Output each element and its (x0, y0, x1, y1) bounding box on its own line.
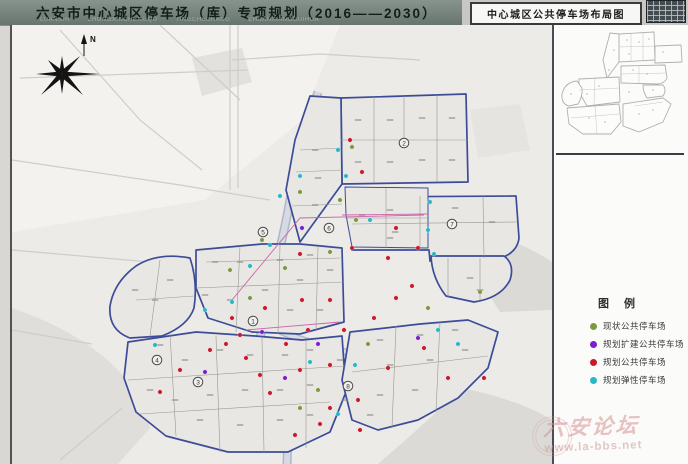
parking-planned-dot (360, 170, 364, 174)
parking-flexible-dot (336, 148, 340, 152)
district-label-mark (307, 254, 314, 256)
parking-planned-dot (284, 342, 288, 346)
zone-marker-8: 8 (343, 381, 353, 391)
zone-number: 8 (346, 383, 350, 390)
parking-planned-dot (358, 428, 362, 432)
parking-existing-dot (283, 266, 287, 270)
map-title-box: 中心城区公共停车场布局图 (470, 2, 642, 25)
legend-label: 规划扩建公共停车场 (603, 338, 684, 350)
district-label-mark (467, 277, 474, 279)
district-label-mark (167, 279, 174, 281)
district-label-mark (452, 207, 459, 209)
district-label-mark (152, 299, 159, 301)
parking-planned-dot (300, 298, 304, 302)
parking-flexible-dot (428, 200, 432, 204)
district-label-mark (307, 349, 314, 351)
district-label-mark (287, 309, 294, 311)
district-label-mark (317, 309, 324, 311)
parking-planned-dot (372, 316, 376, 320)
parking-expansion-dot (416, 336, 420, 340)
district-label-mark (307, 414, 314, 416)
zone-marker-5: 5 (258, 227, 268, 237)
parking-flexible-dot (153, 343, 157, 347)
district-label-mark (342, 399, 349, 401)
district-connector (345, 187, 428, 248)
parking-planned-dot (208, 348, 212, 352)
legend-label: 规划公共停车场 (603, 356, 666, 368)
district-label-mark (277, 389, 284, 391)
parking-planned-dot (306, 328, 310, 332)
district-label-mark (182, 359, 189, 361)
legend-item-flexible: 规划弹性停车场 (590, 374, 684, 386)
parking-existing-dot (426, 306, 430, 310)
sidebar-divider (556, 153, 684, 155)
watermark-site-name: 六安论坛 (542, 407, 688, 442)
parking-flexible-dot (456, 342, 460, 346)
district-central (196, 244, 344, 334)
district-label-mark (489, 221, 496, 223)
parking-planned-dot (298, 368, 302, 372)
parking-existing-dot (328, 250, 332, 254)
parking-planned-dot (386, 366, 390, 370)
parking-planned-dot (482, 376, 486, 380)
district-label-mark (452, 329, 459, 331)
parking-planned-dot (268, 391, 272, 395)
parking-planned-dot (342, 328, 346, 332)
parking-planned-dot (348, 138, 352, 142)
parking-flexible-dot (230, 300, 234, 304)
district-label-mark (337, 359, 344, 361)
parking-expansion-dot (283, 376, 287, 380)
zone-marker-4: 4 (152, 355, 162, 365)
district-label-mark (392, 231, 399, 233)
parking-planned-dot (318, 422, 322, 426)
title-bar: 六安市中心城区停车场（库）专项规划（2016——2030） LUANSHI ZH… (0, 0, 462, 25)
district-label-mark (315, 177, 322, 179)
parking-planned-dot (178, 368, 182, 372)
district-label-mark (307, 384, 314, 386)
parking-existing-dot (248, 296, 252, 300)
district-label-mark (387, 161, 394, 163)
sidebar: 图 例 现状公共停车场规划扩建公共停车场规划公共停车场规划弹性停车场 (552, 25, 688, 464)
parking-planned-dot (258, 373, 262, 377)
parking-planned-dot (422, 346, 426, 350)
parking-planned-dot (328, 298, 332, 302)
parking-existing-dot (366, 342, 370, 346)
zone-number: 6 (327, 225, 331, 232)
parking-flexible-dot (344, 174, 348, 178)
parking-expansion-dot (316, 342, 320, 346)
parking-flexible-dot (368, 218, 372, 222)
parking-planned-dot (158, 390, 162, 394)
parking-planned-dot (410, 284, 414, 288)
district-label-mark (359, 214, 366, 216)
parking-planned-dot (293, 433, 297, 437)
zone-number: 1 (251, 318, 255, 325)
district-label-mark (419, 117, 426, 119)
zone-marker-3: 3 (193, 377, 203, 387)
parking-planned-dot (356, 398, 360, 402)
parking-flexible-dot (432, 252, 436, 256)
parking-planned-dot (328, 363, 332, 367)
district-label-mark (277, 259, 284, 261)
zone-number: 5 (261, 229, 265, 236)
district-label-mark (237, 424, 244, 426)
district-label-mark (262, 289, 269, 291)
parking-planned-dot (238, 333, 242, 337)
district-label-mark (282, 354, 289, 356)
parking-flexible-dot (336, 412, 340, 416)
zone-marker-1: 1 (248, 316, 258, 326)
parking-planned-dot (230, 316, 234, 320)
parking-expansion-dot (260, 330, 264, 334)
parking-planned-dot (394, 226, 398, 230)
parking-planned-dot (394, 296, 398, 300)
district-label-mark (387, 237, 394, 239)
parking-flexible-dot (436, 328, 440, 332)
parking-planned-dot (416, 246, 420, 250)
district-label-mark (312, 204, 319, 206)
expansion-dot-icon (590, 341, 597, 348)
district-label-mark (427, 359, 434, 361)
parking-flexible-dot (353, 363, 357, 367)
page-title-pinyin: LUANSHI ZHONGXINCHENGQU TINGCHECHANG ZHU… (40, 17, 319, 23)
parking-flexible-dot (278, 194, 282, 198)
district-label-mark (217, 349, 224, 351)
district-label-mark (449, 117, 456, 119)
parking-existing-dot (316, 388, 320, 392)
built-patch-ne (470, 104, 530, 158)
district-label-mark (297, 279, 304, 281)
parking-existing-dot (260, 238, 264, 242)
district-label-mark (207, 394, 214, 396)
parking-existing-dot (354, 218, 358, 222)
zone-marker-7: 7 (447, 219, 457, 229)
parking-planned-dot (328, 406, 332, 410)
parking-flexible-dot (298, 174, 302, 178)
parking-existing-dot (338, 198, 342, 202)
parking-planned-dot (244, 356, 248, 360)
district-label-mark (355, 119, 362, 121)
district-label-mark (247, 354, 254, 356)
parking-flexible-dot (248, 264, 252, 268)
parking-flexible-dot (308, 360, 312, 364)
zone-marker-6: 6 (324, 223, 334, 233)
district-label-mark (212, 261, 219, 263)
district-label-mark (237, 261, 244, 263)
parking-flexible-dot (426, 228, 430, 232)
district-label-mark (367, 414, 374, 416)
legend-items: 现状公共停车场规划扩建公共停车场规划公共停车场规划弹性停车场 (590, 320, 684, 386)
corner-stamp-grid-icon (646, 0, 686, 23)
zone-marker-2: 2 (399, 138, 409, 148)
legend-item-existing: 现状公共停车场 (590, 320, 684, 332)
district-label-mark (419, 159, 426, 161)
parking-planned-dot (224, 342, 228, 346)
parking-existing-dot (298, 190, 302, 194)
parking-planned-dot (350, 246, 354, 250)
north-label: N (90, 35, 96, 44)
zone-number: 7 (450, 221, 454, 228)
district-label-mark (172, 399, 179, 401)
district-label-mark (197, 419, 204, 421)
legend-title: 图 例 (598, 295, 684, 311)
district-label-mark (412, 389, 419, 391)
flexible-dot-icon (590, 377, 597, 384)
parking-flexible-dot (268, 243, 272, 247)
parking-existing-dot (350, 145, 354, 149)
watermark: 六安论坛 www.la-bbs.net (543, 407, 688, 454)
district-label-mark (377, 394, 384, 396)
district-label-mark (312, 149, 319, 151)
overview-minimap (559, 30, 685, 150)
district-label-mark (377, 339, 384, 341)
zone-number: 4 (155, 357, 159, 364)
parking-planned-dot (386, 256, 390, 260)
district-label-mark (449, 159, 456, 161)
district-label-mark (462, 349, 469, 351)
district-label-mark (387, 119, 394, 121)
parking-flexible-dot (203, 308, 207, 312)
parking-planned-dot (263, 306, 267, 310)
parking-planned-dot (446, 376, 450, 380)
district-label-mark (355, 161, 362, 163)
parking-existing-dot (298, 406, 302, 410)
district-label-mark (277, 419, 284, 421)
district-label-mark (147, 389, 154, 391)
district-label-mark (387, 209, 394, 211)
city-map: 12345678 N (12, 25, 552, 464)
district-label-mark (242, 389, 249, 391)
legend-item-expansion: 规划扩建公共停车场 (590, 338, 684, 350)
district-label-mark (202, 294, 209, 296)
parking-expansion-dot (300, 226, 304, 230)
legend: 图 例 现状公共停车场规划扩建公共停车场规划公共停车场规划弹性停车场 (590, 295, 684, 392)
district-label-mark (132, 289, 139, 291)
parking-planned-dot (298, 252, 302, 256)
legend-item-planned: 规划公共停车场 (590, 356, 684, 368)
legend-label: 现状公共停车场 (603, 320, 666, 332)
existing-dot-icon (590, 323, 597, 330)
parking-expansion-dot (203, 370, 207, 374)
district-label-mark (157, 344, 164, 346)
district-label-mark (327, 269, 334, 271)
zone-number: 3 (196, 379, 200, 386)
map-panel: 12345678 N (10, 25, 552, 464)
parking-existing-dot (478, 290, 482, 294)
parking-existing-dot (228, 268, 232, 272)
zone-number: 2 (402, 140, 406, 147)
planned-dot-icon (590, 359, 597, 366)
legend-label: 规划弹性停车场 (603, 374, 666, 386)
